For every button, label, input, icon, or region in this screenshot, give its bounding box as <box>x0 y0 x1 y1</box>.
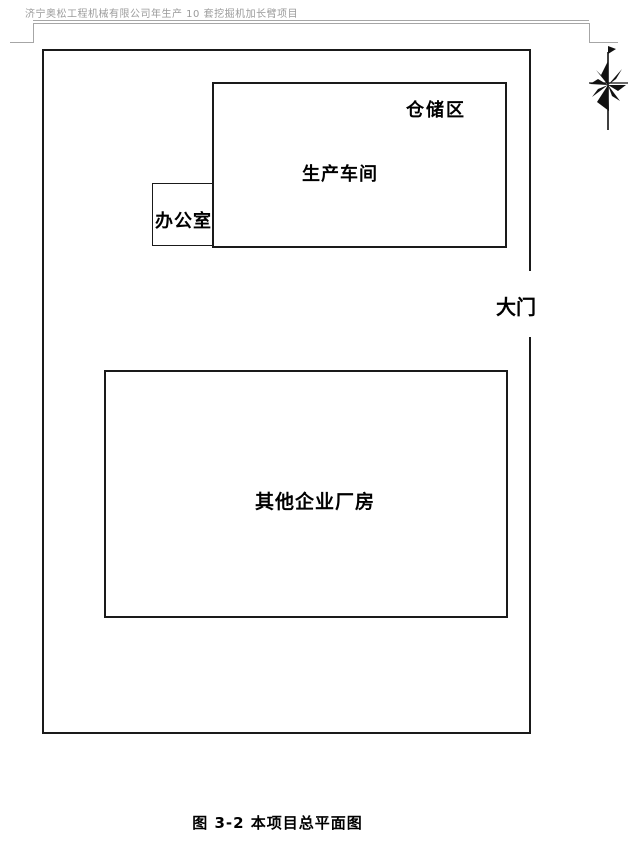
header-rule-step-left <box>10 42 34 43</box>
header-rule-step-left <box>33 23 34 43</box>
main-gate-label: 大门 <box>496 291 536 320</box>
figure-caption: 图 3-2 本项目总平面图 <box>0 812 555 833</box>
other-factory-label: 其他企业厂房 <box>255 487 375 514</box>
header-rule-line <box>33 23 589 24</box>
workshop-label: 生产车间 <box>302 160 378 186</box>
header-rule-step-right <box>589 23 590 43</box>
office-label: 办公室 <box>155 207 212 233</box>
header-rule-line <box>33 20 589 21</box>
header-rule-step-right <box>589 42 618 43</box>
storage-area-label: 仓储区 <box>406 96 466 122</box>
page-header-title: 济宁奥松工程机械有限公司年生产 10 套挖掘机加长臂项目 <box>25 5 298 20</box>
document-page: 济宁奥松工程机械有限公司年生产 10 套挖掘机加长臂项目 仓储区 生产车间 办公… <box>0 0 629 847</box>
north-compass-icon <box>588 45 629 134</box>
